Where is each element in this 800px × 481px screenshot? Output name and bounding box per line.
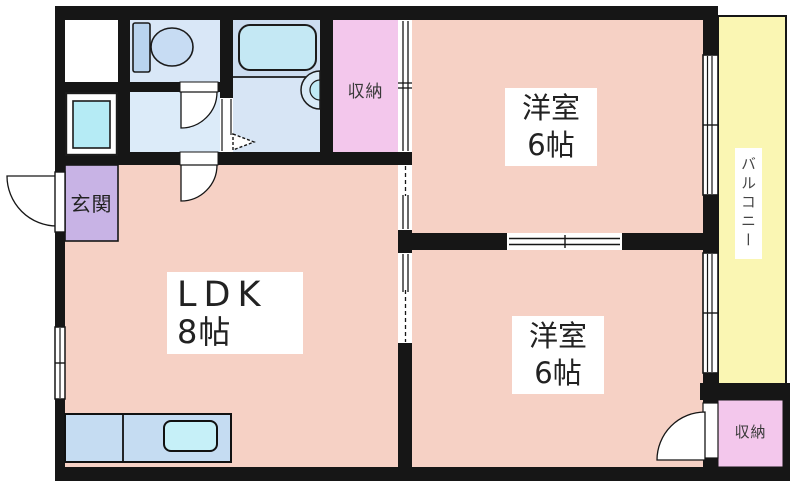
window-right-top [703, 55, 718, 195]
bedroom-bottom-size: 6帖 [512, 355, 604, 392]
wall-toilet-bottom-b [218, 82, 233, 92]
entrance-label: 玄関 [65, 188, 118, 217]
bathtub-icon [233, 25, 320, 77]
wall-under-utility [55, 82, 130, 92]
entrance-door [7, 172, 65, 232]
bedrooms-slider [507, 233, 622, 250]
ldk-name: LDK [177, 276, 303, 314]
bedroom-top-name: 洋室 [505, 90, 597, 127]
wall-top [55, 6, 718, 20]
window-right-bottom [703, 253, 718, 373]
kitchen-counter-icon [65, 414, 231, 462]
wall-right-1 [703, 6, 718, 55]
wall-bath-right [320, 17, 333, 165]
washing-machine-icon [66, 93, 117, 155]
ldk-label: LDK 8帖 [167, 272, 303, 354]
balcony-label: バルコニー [735, 148, 762, 259]
wall-left-mid [55, 232, 65, 327]
wall-toilet-bottom-a [130, 82, 180, 92]
wall-bottom [55, 467, 790, 481]
floorplan: 収納 洋室 6帖 バルコニー 玄関 LDK 8帖 洋室 6帖 収納 [0, 0, 800, 481]
ldk-bedroom-top-opening [398, 165, 412, 230]
wall-hall-b [218, 152, 412, 165]
wall-right-outer-lower [783, 383, 790, 481]
window-left [55, 327, 65, 399]
wall-divider-lower [398, 343, 412, 467]
storage-top-label: 収納 [333, 77, 398, 102]
bedroom-bottom-label: 洋室 6帖 [512, 316, 604, 394]
wall-balcony-bottom [700, 383, 790, 400]
bedroom-top-label: 洋室 6帖 [505, 88, 597, 166]
bedroom-bottom-name: 洋室 [512, 318, 604, 355]
ldk-bedroom-bottom-opening [398, 253, 412, 343]
bedroom-top-size: 6帖 [505, 127, 597, 164]
wall-bedrooms-a [398, 233, 507, 250]
floorplan-drawing [0, 0, 800, 481]
closet-top-slider [398, 20, 412, 152]
storage-bottom-label: 収納 [718, 421, 783, 442]
utility-room [65, 17, 118, 82]
ldk-size: 8帖 [177, 314, 303, 350]
wall-bedrooms-b [622, 233, 718, 250]
